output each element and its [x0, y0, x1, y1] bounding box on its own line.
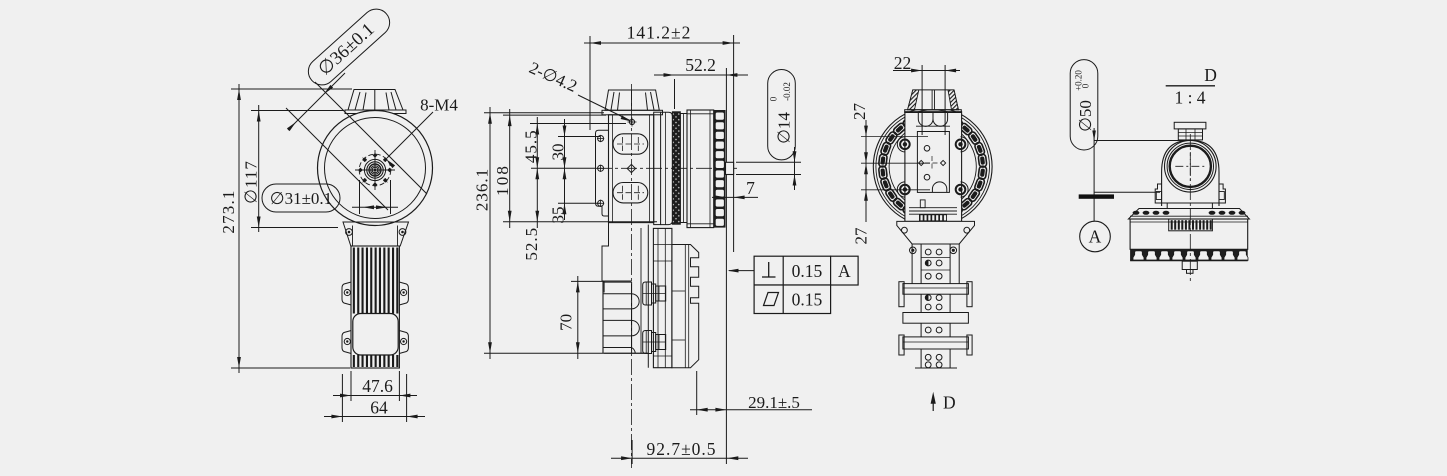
- svg-text:0.15: 0.15: [792, 290, 823, 310]
- svg-text:A: A: [838, 261, 851, 281]
- svg-text:64: 64: [370, 398, 388, 418]
- svg-text:-0.02: -0.02: [782, 82, 792, 101]
- svg-text:47.6: 47.6: [362, 376, 393, 396]
- svg-text:∅50: ∅50: [1076, 100, 1095, 132]
- svg-text:52.2: 52.2: [685, 55, 716, 75]
- svg-text:A: A: [1089, 227, 1102, 247]
- svg-text:0: 0: [769, 96, 779, 101]
- svg-text:29.1±.5: 29.1±.5: [748, 393, 800, 412]
- svg-text:∅31±0.1: ∅31±0.1: [270, 189, 332, 208]
- svg-text:108: 108: [493, 164, 512, 196]
- svg-text:27: 27: [852, 227, 871, 245]
- svg-text:92.7±0.5: 92.7±0.5: [646, 439, 716, 459]
- svg-text:22: 22: [894, 53, 912, 73]
- svg-text:8-M4: 8-M4: [420, 96, 458, 115]
- svg-text:45.5: 45.5: [521, 129, 540, 163]
- svg-text:35: 35: [548, 207, 567, 224]
- svg-text:7: 7: [746, 178, 755, 198]
- svg-text:∅14: ∅14: [774, 112, 793, 144]
- svg-text:30: 30: [548, 144, 567, 161]
- svg-text:141.2±2: 141.2±2: [627, 23, 692, 43]
- svg-text:236.1: 236.1: [473, 168, 492, 211]
- svg-text:1 : 4: 1 : 4: [1174, 88, 1205, 108]
- svg-text:D: D: [943, 393, 956, 413]
- svg-text:D: D: [1204, 65, 1217, 85]
- svg-text:∅117: ∅117: [242, 160, 261, 204]
- svg-text:52.5: 52.5: [522, 227, 541, 261]
- svg-text:70: 70: [557, 314, 576, 331]
- svg-text:273.1: 273.1: [219, 189, 238, 233]
- svg-text:0: 0: [1081, 83, 1091, 88]
- svg-text:27: 27: [850, 103, 869, 121]
- svg-text:0.15: 0.15: [792, 261, 823, 281]
